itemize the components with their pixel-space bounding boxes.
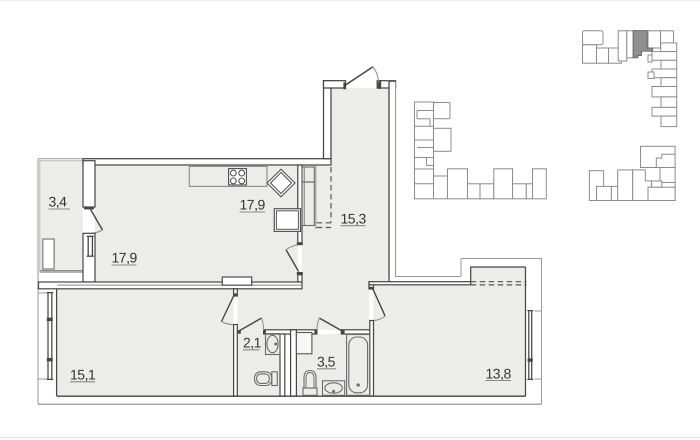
svg-text:3,5: 3,5 (317, 354, 336, 370)
svg-text:2,1: 2,1 (243, 335, 262, 351)
svg-text:15,3: 15,3 (341, 211, 367, 227)
svg-text:17,9: 17,9 (240, 197, 266, 213)
svg-text:17,9: 17,9 (112, 250, 138, 266)
svg-text:3,4: 3,4 (49, 194, 68, 210)
svg-text:13,8: 13,8 (486, 366, 512, 382)
svg-text:15,1: 15,1 (70, 367, 96, 383)
